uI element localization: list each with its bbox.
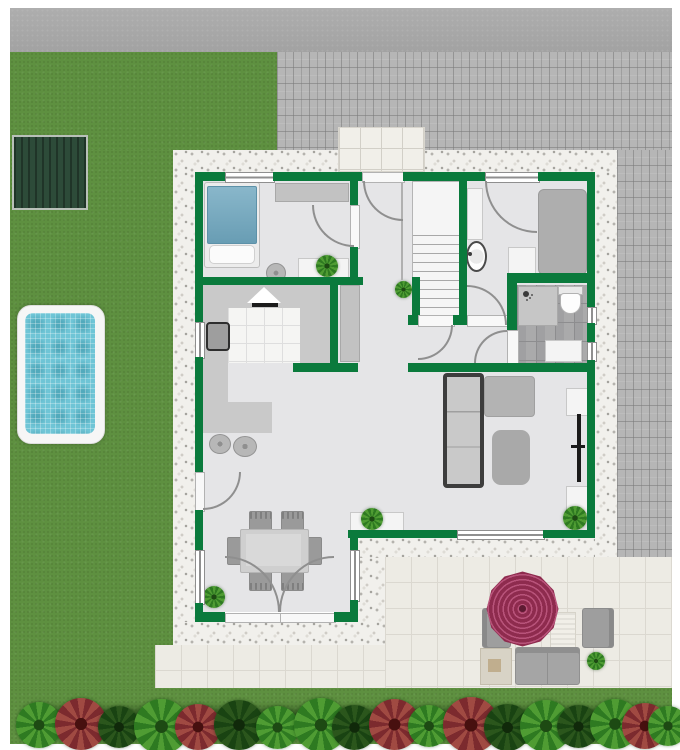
wall (195, 510, 203, 550)
bathroom-door-sill (507, 330, 519, 365)
plant-icon (316, 255, 338, 277)
bar-stool (209, 434, 231, 454)
potted-plant-icon (587, 652, 605, 670)
washbasin-tap-icon (468, 252, 472, 256)
wall (350, 247, 358, 277)
bar-stool (233, 436, 257, 457)
wall (538, 172, 595, 181)
wall (273, 172, 362, 181)
wall (587, 181, 595, 307)
dining-chair (281, 511, 304, 531)
dining-chair (249, 511, 272, 531)
nightstand (508, 247, 536, 275)
kitchen-floor-tiles (228, 308, 300, 363)
wall (195, 612, 225, 622)
shower-head-icon (523, 291, 529, 297)
tv-bracket-icon (571, 445, 585, 448)
french-door-sill (280, 613, 336, 623)
wall (459, 181, 467, 315)
hall-cabinet (340, 285, 360, 362)
parasol-pole-icon (519, 605, 526, 612)
gravel-border-south-dining (173, 622, 385, 645)
stair-winders (412, 181, 460, 230)
wall (408, 363, 595, 372)
wall (453, 315, 467, 325)
bed2 (538, 189, 587, 275)
wall (350, 538, 358, 550)
patio-left (155, 645, 385, 688)
wall (195, 172, 225, 181)
wall (350, 600, 358, 612)
bathroom-sink (545, 340, 582, 362)
wall (403, 172, 485, 181)
kitchen-counter-top (228, 285, 330, 308)
toilet (560, 293, 581, 314)
window (350, 550, 360, 602)
dining-table-top (246, 534, 301, 566)
window (587, 342, 597, 362)
wall (507, 273, 595, 283)
patio-loveseat (515, 647, 580, 685)
sofa-chaise (484, 376, 535, 417)
gravel-border-left (173, 172, 195, 645)
wall (507, 283, 517, 330)
wall (543, 530, 595, 538)
wall (330, 285, 338, 363)
patio-armchair-right (582, 608, 614, 648)
floor-plan (0, 0, 680, 750)
window (195, 550, 205, 605)
hedge-soil-band (24, 708, 660, 736)
kitchen-peninsula (228, 402, 272, 433)
kitchen-counter-east (300, 308, 330, 363)
wall (348, 530, 457, 538)
road-strip (10, 8, 672, 52)
wall (587, 323, 595, 342)
wall (587, 360, 595, 538)
wall (293, 363, 358, 372)
plant-icon (361, 508, 383, 530)
garden-shed (12, 135, 88, 210)
gravel-border-right (595, 172, 617, 558)
wall (334, 612, 358, 622)
plant-icon (395, 281, 412, 298)
tv-board-upper (566, 388, 589, 416)
driveway-pavers-top (277, 52, 672, 150)
entry-walkway (338, 127, 425, 172)
plant-icon (203, 586, 225, 608)
kitchen-sink (206, 322, 230, 351)
window (225, 172, 275, 183)
wall (195, 181, 203, 322)
wall (195, 277, 363, 285)
window (457, 530, 545, 540)
plant-icon (563, 506, 587, 530)
bed-pillow (209, 245, 255, 264)
bed-duvet (207, 186, 257, 244)
patio-side-table-tray (488, 659, 501, 672)
wardrobe (275, 183, 349, 202)
wall (412, 277, 420, 318)
kitchen-counter-left (203, 285, 228, 433)
driveway-pavers-right (617, 150, 672, 557)
wall (350, 181, 358, 205)
cooktop (252, 303, 278, 307)
wall (195, 357, 203, 472)
gravel-border-south-living (358, 538, 595, 558)
ottoman (492, 430, 530, 485)
window (195, 322, 205, 359)
bedroom2-cabinet (467, 188, 483, 240)
wall (408, 315, 418, 325)
sofa-cushions (447, 377, 480, 484)
washbasin (466, 241, 487, 272)
tv-icon (577, 414, 581, 482)
french-door-sill (225, 613, 281, 623)
swimming-pool (25, 313, 95, 434)
